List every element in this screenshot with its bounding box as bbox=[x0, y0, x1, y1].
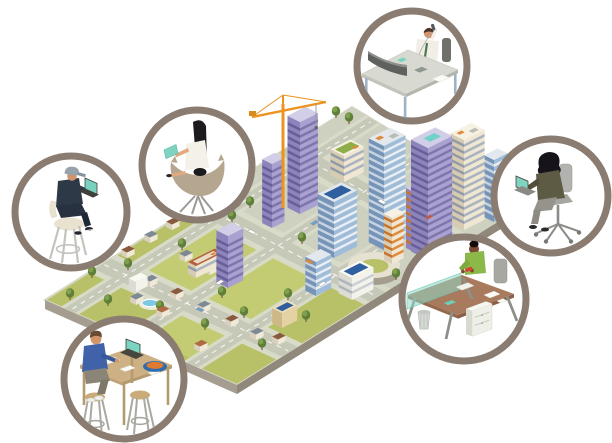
vignette-person-cafe-table: Person in a blue sweater on a laptop at … bbox=[64, 319, 184, 439]
vignette-woman-standing-desk: Woman in a green top working at a desk w… bbox=[402, 237, 526, 361]
fruit-bowl bbox=[143, 361, 167, 372]
building-glass bbox=[318, 182, 357, 258]
desk-leg bbox=[404, 97, 407, 118]
vignette-man-laptop-stool: Man in a cap working on a teal laptop wh… bbox=[15, 156, 127, 268]
shoe bbox=[529, 225, 537, 229]
shoe bbox=[541, 228, 549, 232]
building-glass bbox=[305, 249, 331, 296]
purse bbox=[194, 168, 207, 176]
swimming-pool bbox=[142, 299, 158, 306]
building-lavender bbox=[216, 223, 243, 288]
building-lavender bbox=[262, 153, 284, 228]
building-creamorange bbox=[384, 208, 404, 264]
hand bbox=[115, 359, 119, 363]
chair-back bbox=[494, 259, 507, 283]
building-lavender bbox=[288, 107, 318, 214]
illustration-canvas: Telecommuting illustration Isometric cit… bbox=[0, 0, 612, 443]
hand bbox=[461, 270, 465, 274]
shoe bbox=[87, 398, 95, 402]
torso bbox=[185, 140, 209, 170]
vignette-woman-tablet: Woman with long dark hair reading a teal… bbox=[142, 110, 252, 220]
shoe bbox=[166, 174, 172, 177]
trash-can bbox=[418, 310, 430, 329]
shoe bbox=[94, 396, 103, 400]
vignette-man-on-phone: Businessman taking a phone call at a des… bbox=[357, 11, 467, 121]
shoe bbox=[74, 231, 81, 235]
t-shirt bbox=[56, 178, 83, 207]
hair bbox=[469, 241, 478, 248]
telecommuting-illustration: Telecommuting illustration Isometric cit… bbox=[0, 0, 612, 443]
desk-leg bbox=[454, 74, 457, 94]
vignette-woman-office-chair: Woman with a teal laptop seated in a gra… bbox=[494, 139, 608, 253]
office-chair bbox=[442, 38, 451, 62]
building-cream bbox=[451, 123, 485, 230]
